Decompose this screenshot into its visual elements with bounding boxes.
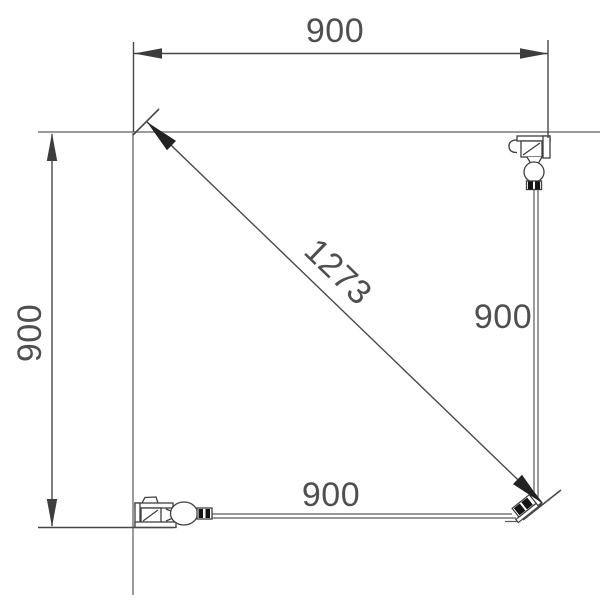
dimension-left — [38, 134, 174, 528]
clamp-jaw — [528, 182, 533, 190]
technical-drawing: 900 900 1273 900 900 — [0, 0, 600, 600]
bracket-bottom-plate — [135, 522, 176, 528]
clamp-jaw — [199, 509, 204, 518]
bracket-clip — [509, 140, 517, 153]
rod-horizontal — [212, 514, 519, 522]
pivot-ball — [524, 162, 544, 182]
hardware-top-right-bracket — [509, 136, 550, 190]
dim-label-bottom: 900 — [302, 478, 360, 512]
clamp-jaw — [206, 509, 211, 518]
arrowhead-icon — [520, 48, 548, 58]
rod-vertical — [534, 188, 538, 497]
hardware-bottom-left-bracket — [135, 497, 212, 528]
dim-label-left: 900 — [13, 304, 47, 362]
bracket-top-plate — [135, 503, 173, 508]
dim-label-top: 900 — [306, 14, 364, 48]
clamp-jaw — [535, 182, 540, 190]
arrowhead-icon — [134, 48, 162, 58]
arrowhead-icon — [47, 133, 57, 161]
dimension-top — [134, 40, 549, 138]
arrowhead-icon — [47, 499, 57, 527]
pivot-ball — [171, 502, 198, 525]
dim-label-right: 900 — [474, 300, 532, 334]
bracket-side-plate — [543, 136, 550, 158]
bracket-clip — [142, 497, 158, 503]
